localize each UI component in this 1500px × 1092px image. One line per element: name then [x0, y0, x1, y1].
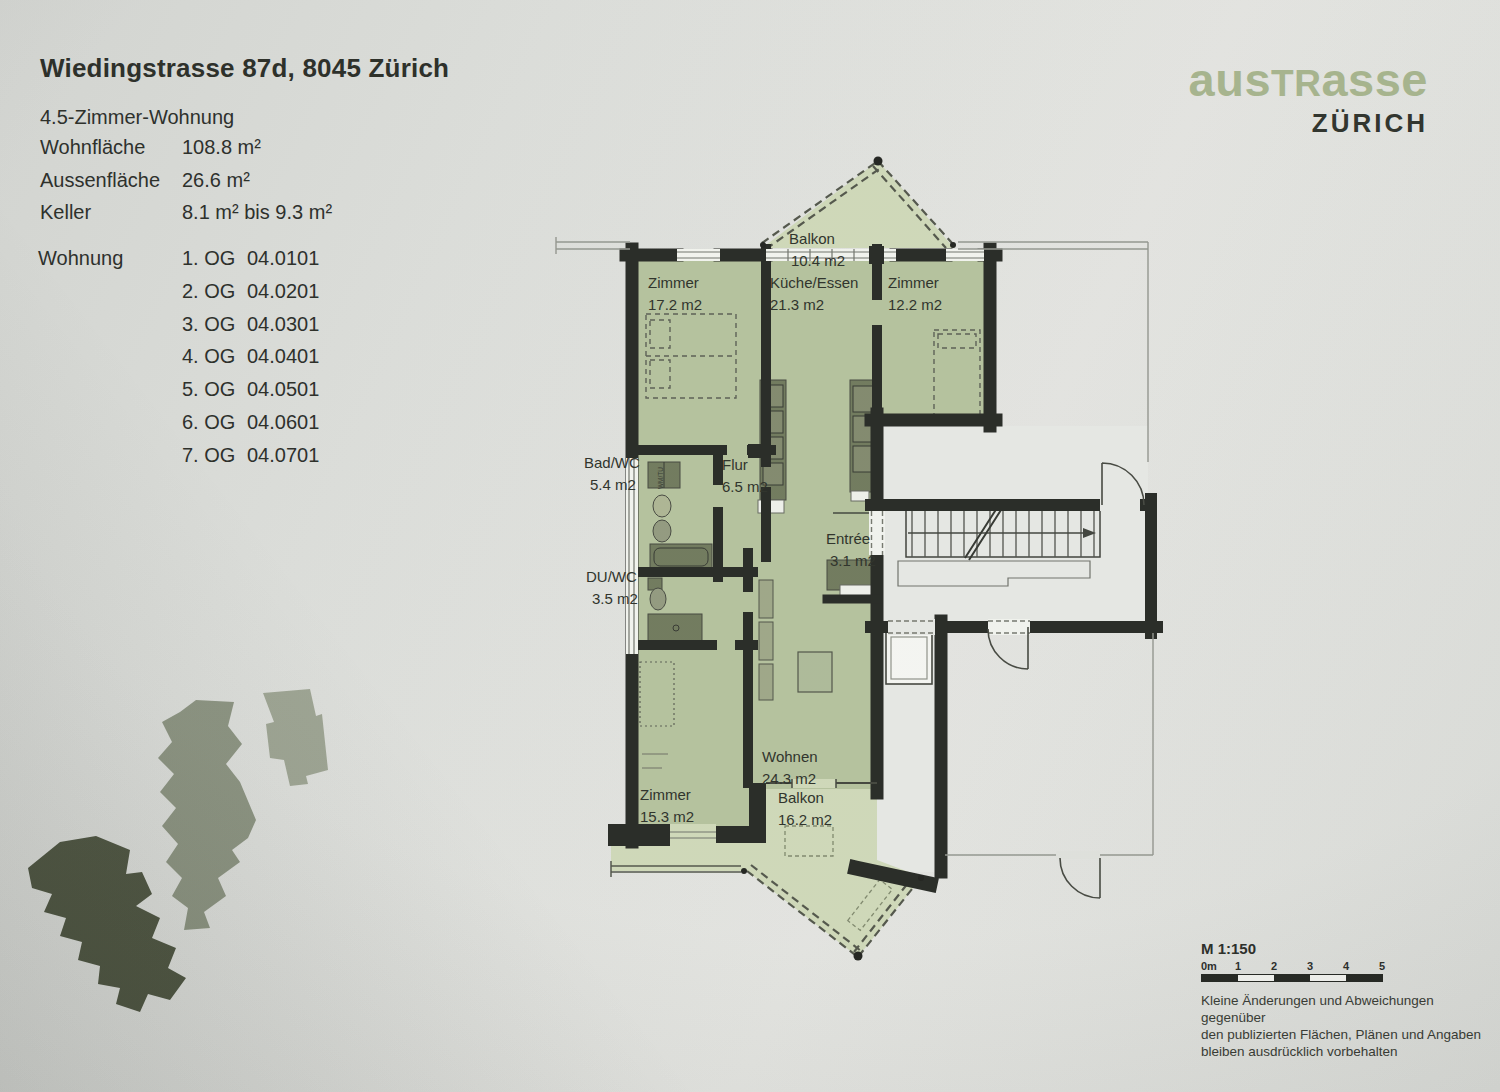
- label-wm-tu: WM/TU: [657, 467, 664, 489]
- site-shape-dark: [28, 836, 186, 1012]
- unit-floor: 4. OG: [182, 345, 247, 368]
- disclaimer: Kleine Änderungen und Abweichungen gegen…: [1201, 992, 1500, 1060]
- label-badwc: Bad/WC: [584, 454, 640, 471]
- label-zimmer-12: Zimmer: [888, 274, 939, 291]
- scale-tick: 5: [1379, 960, 1385, 972]
- label-duwc-area: 3.5 m2: [592, 590, 638, 607]
- unit-floor: 7. OG: [182, 444, 247, 467]
- label-entree: Entrée: [826, 530, 870, 547]
- scale-tick: 3: [1307, 960, 1313, 972]
- elevator: [886, 632, 932, 684]
- disclaimer-line: Kleine Änderungen und Abweichungen gegen…: [1201, 992, 1500, 1026]
- unit-code: 04.0601: [247, 411, 319, 434]
- unit-code: 04.0101: [247, 247, 319, 270]
- balcony-door-zimmer-15: [670, 824, 716, 846]
- label-balkon-bottom: Balkon: [778, 789, 824, 806]
- site-key-plan: [28, 689, 328, 1012]
- unit-row-3: 3. OG 04.0301: [182, 313, 319, 336]
- unit-code: 04.0501: [247, 378, 319, 401]
- unit-row-4: 4. OG 04.0401: [182, 345, 319, 368]
- brand-part: TR: [1271, 63, 1321, 104]
- neighbour-door: [1056, 851, 1100, 898]
- scale-bar-segment: [1202, 975, 1238, 981]
- unit-row-6: 6. OG 04.0601: [182, 411, 319, 434]
- label-flur-area: 6.5 m2: [722, 478, 768, 495]
- unit-row-7: 7. OG 04.0701: [182, 444, 319, 467]
- scale-bar-segment: [1310, 975, 1346, 981]
- label-zimmer-17-area: 17.2 m2: [648, 296, 702, 313]
- scale-bar-segment: [1238, 975, 1274, 981]
- wohnen-table: [798, 652, 832, 692]
- stairwell-opening-right: [988, 619, 1030, 635]
- label-balkon-bottom-area: 16.2 m2: [778, 811, 832, 828]
- page-title: Wiedingstrasse 87d, 8045 Zürich: [40, 53, 449, 84]
- scale-bar: [1201, 974, 1383, 982]
- label-zimmer-12-area: 12.2 m2: [888, 296, 942, 313]
- unit-floor: 1. OG: [182, 247, 247, 270]
- label-zimmer-15-area: 15.3 m2: [640, 808, 694, 825]
- site-shape-light: [263, 689, 328, 786]
- site-shape-mid: [158, 700, 256, 930]
- scale-tick: 4: [1343, 960, 1349, 972]
- label-kueche: Küche/Essen: [770, 274, 858, 291]
- unit-code: 04.0201: [247, 280, 319, 303]
- scale-bar-segment: [1346, 975, 1382, 981]
- unit-code: 04.0401: [247, 345, 319, 368]
- scale-bar-segment: [1274, 975, 1310, 981]
- label-balkon-top: Balkon: [789, 230, 835, 247]
- label-balkon-top-area: 10.4 m2: [791, 252, 845, 269]
- unit-row-5: 5. OG 04.0501: [182, 378, 319, 401]
- brand-wordmark: ausTRasse: [1189, 56, 1428, 103]
- spec-label: Wohnfläche: [40, 136, 182, 159]
- spec-value: 108.8 m²: [182, 136, 261, 159]
- floorplan-page: { "header": { "title": "Wiedingstrasse 8…: [0, 0, 1500, 1092]
- wohnen-sideboard: [759, 580, 773, 700]
- disclaimer-line: den publizierten Flächen, Plänen und Ang…: [1201, 1026, 1500, 1043]
- spec-label: Keller: [40, 201, 182, 224]
- spec-label: Aussenfläche: [40, 169, 182, 192]
- unit-row-2: 2. OG 04.0201: [182, 280, 319, 303]
- label-zimmer-17: Zimmer: [648, 274, 699, 291]
- scale-tick: 2: [1271, 960, 1277, 972]
- floor-plan: Balkon 10.4 m2 Zimmer 17.2 m2 Küche/Esse…: [0, 0, 1500, 1092]
- label-entree-area: 3.1 m2: [830, 552, 876, 569]
- unit-floor: 3. OG: [182, 313, 247, 336]
- window-top-left: [677, 249, 720, 261]
- scale-ticks: 0m 1 2 3 4 5: [1201, 960, 1401, 973]
- brand-part: aus: [1189, 53, 1272, 106]
- window-top-right: [946, 249, 984, 261]
- scale-tick: 1: [1235, 960, 1241, 972]
- wohnung-label: Wohnung: [38, 247, 123, 270]
- unit-code: 04.0701: [247, 444, 319, 467]
- label-zimmer-15: Zimmer: [640, 786, 691, 803]
- spec-value: 26.6 m²: [182, 169, 250, 192]
- stairwell-opening-left: [888, 619, 935, 635]
- apartment-type: 4.5-Zimmer-Wohnung: [40, 106, 234, 129]
- spec-value: 8.1 m² bis 9.3 m²: [182, 201, 332, 224]
- label-wohnen-area: 24.3 m2: [762, 770, 816, 787]
- unit-row-1: 1. OG 04.0101: [182, 247, 319, 270]
- label-flur: Flur: [722, 456, 748, 473]
- scale-label: M 1:150: [1201, 940, 1256, 957]
- brand-part: asse: [1321, 53, 1428, 106]
- brand-city: ZÜRICH: [1189, 108, 1428, 139]
- label-duwc: DU/WC: [586, 568, 637, 585]
- spec-row-wohnflaeche: Wohnfläche 108.8 m²: [40, 136, 261, 159]
- brand-logo: ausTRasse ZÜRICH: [1189, 56, 1428, 139]
- label-badwc-area: 5.4 m2: [590, 476, 636, 493]
- spec-row-aussenflaeche: Aussenfläche 26.6 m²: [40, 169, 250, 192]
- unit-floor: 2. OG: [182, 280, 247, 303]
- label-wohnen: Wohnen: [762, 748, 818, 765]
- scale-tick: 0m: [1201, 960, 1217, 972]
- disclaimer-line: bleiben ausdrücklich vorbehalten: [1201, 1043, 1500, 1060]
- unit-floor: 5. OG: [182, 378, 247, 401]
- spec-row-keller: Keller 8.1 m² bis 9.3 m²: [40, 201, 332, 224]
- apartment-entry-door: [869, 511, 885, 555]
- unit-code: 04.0301: [247, 313, 319, 336]
- label-kueche-area: 21.3 m2: [770, 296, 824, 313]
- unit-floor: 6. OG: [182, 411, 247, 434]
